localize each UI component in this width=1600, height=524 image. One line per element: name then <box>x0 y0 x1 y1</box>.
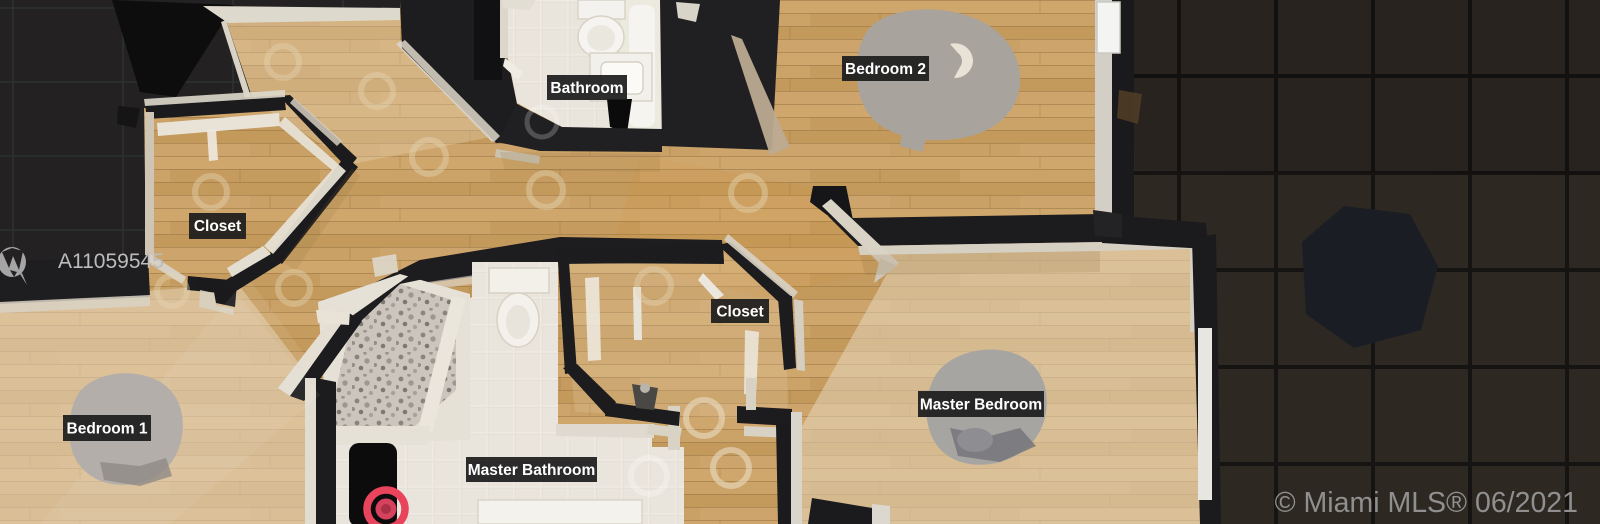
svg-text:Bedroom 1: Bedroom 1 <box>67 421 148 438</box>
svg-text:Master Bedroom: Master Bedroom <box>920 397 1042 414</box>
svg-text:A11059545: A11059545 <box>58 250 164 273</box>
svg-text:Master Bathroom: Master Bathroom <box>468 462 595 479</box>
svg-text:Closet: Closet <box>716 304 763 321</box>
svg-text:Closet: Closet <box>194 218 241 235</box>
svg-text:Bathroom: Bathroom <box>550 80 623 97</box>
svg-text:Bedroom 2: Bedroom 2 <box>845 61 926 78</box>
svg-text:© Miami MLS® 06/2021: © Miami MLS® 06/2021 <box>1275 487 1578 519</box>
